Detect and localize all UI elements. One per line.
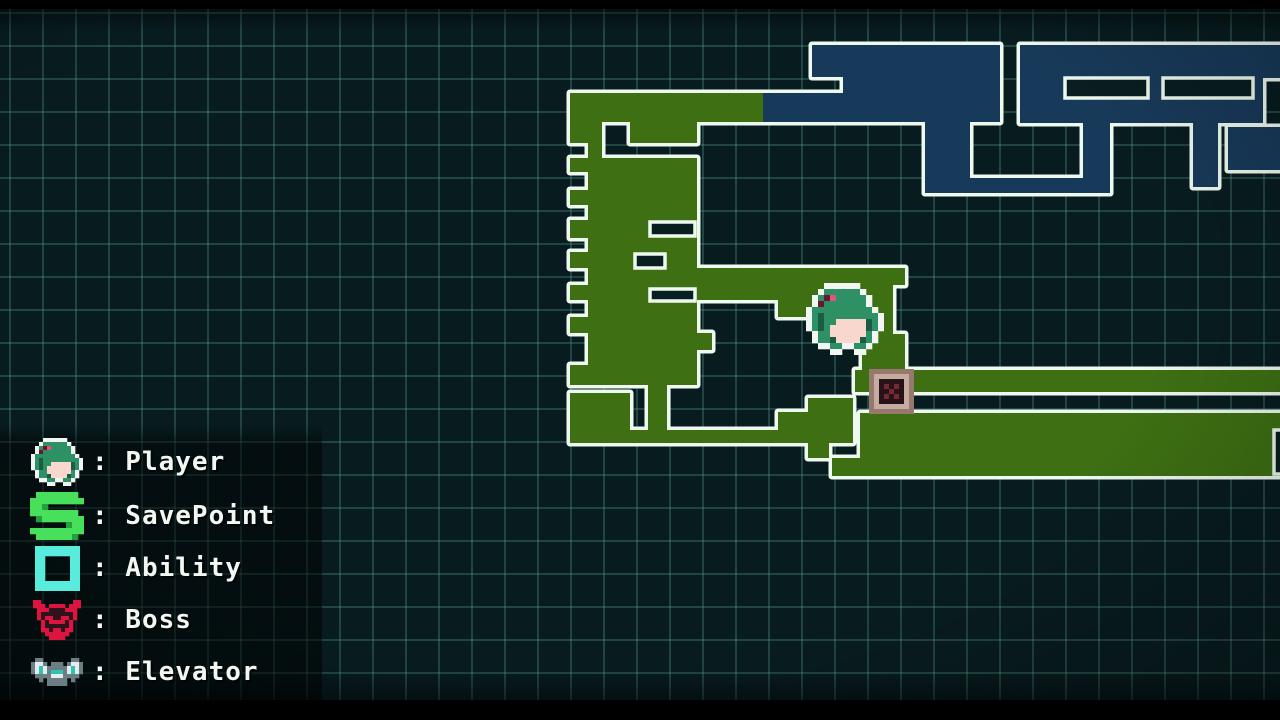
legend-row-elevator: : Elevator xyxy=(22,646,322,698)
boss-room-marker xyxy=(869,369,914,414)
legend-row-label: : Boss xyxy=(92,605,192,635)
elevator-icon xyxy=(22,658,92,686)
legend-row-label: : Player xyxy=(92,447,225,477)
savepoint-icon xyxy=(22,492,92,540)
game-map-screen: : Player : SavePoint : Ability : Boss : … xyxy=(0,0,1280,720)
letterbox-top xyxy=(0,0,1280,9)
player-marker xyxy=(806,283,884,355)
legend-row-savepoint: : SavePoint xyxy=(22,490,322,542)
letterbox-bottom xyxy=(0,700,1280,720)
legend-row-label: : Elevator xyxy=(92,657,259,687)
boss-icon xyxy=(22,600,92,640)
legend-row-player: : Player xyxy=(22,436,322,488)
ability-icon xyxy=(22,546,92,591)
legend-row-ability: : Ability xyxy=(22,542,322,594)
legend-row-label: : Ability xyxy=(92,553,242,583)
player-icon xyxy=(22,438,92,486)
legend-row-boss: : Boss xyxy=(22,594,322,646)
legend-row-label: : SavePoint xyxy=(92,501,275,531)
